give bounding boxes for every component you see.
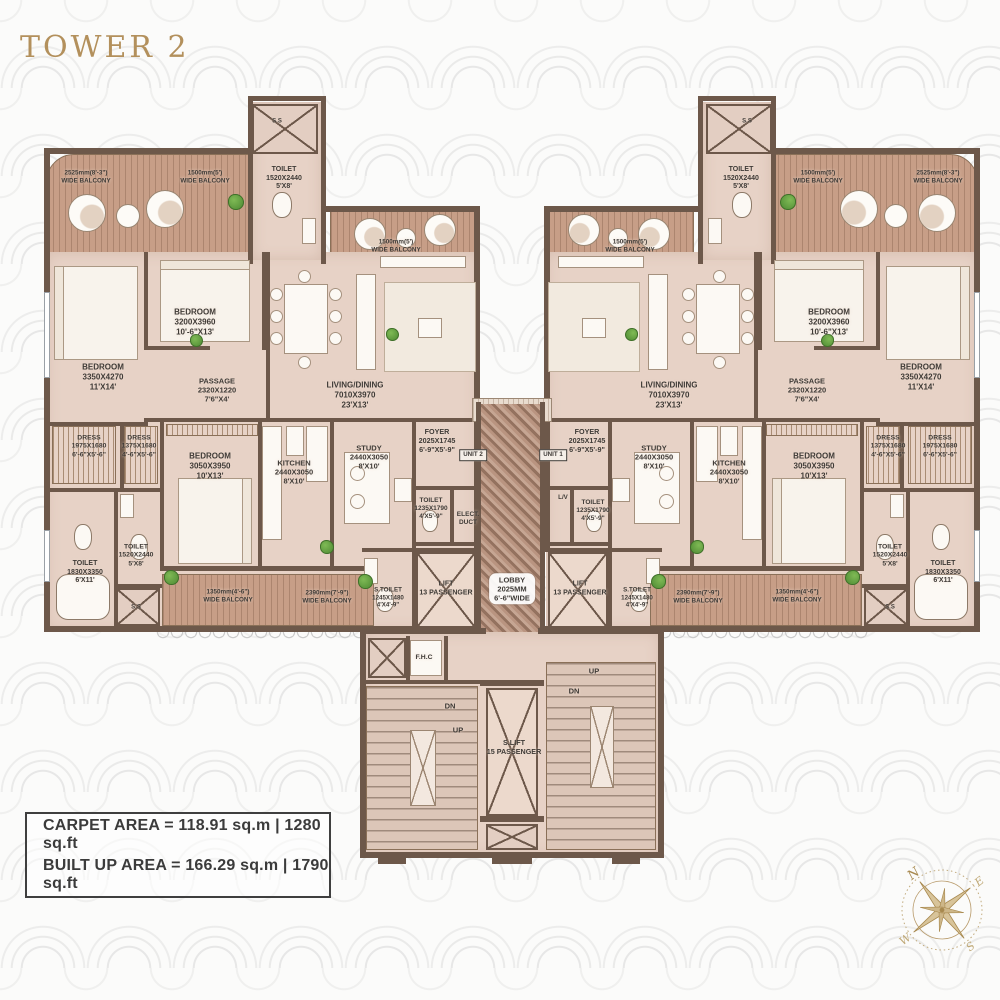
- living-dining-label: LIVING/DINING7010X397023'X13': [641, 380, 698, 409]
- shaft-label: S.S: [885, 604, 895, 611]
- toilet-label: TOILET1520X24405'X8': [873, 544, 908, 569]
- shaft-label: S.S: [272, 118, 282, 125]
- bedroom-label: BEDROOM3350X427011'X14': [82, 362, 124, 391]
- fhc-label: F.H.C: [416, 654, 433, 662]
- dress-label: DRESS1375X16804'-6"X5'-6": [122, 435, 157, 460]
- bedroom-label: BEDROOM3350X427011'X14': [900, 362, 942, 391]
- kitchen-label: KITCHEN2440X30508'X10': [710, 458, 748, 485]
- toilet-label: TOILET1520X24405'X8': [119, 544, 154, 569]
- compass-s: S: [964, 939, 978, 954]
- shaft-label: S.S: [131, 604, 141, 611]
- shaft-label: S.S: [742, 118, 752, 125]
- toilet-label: S.TOILET1245X14804'X4'-9": [372, 587, 404, 610]
- compass-n: N: [904, 864, 923, 884]
- built-up-area-text: BUILT UP AREA = 166.29 sq.m | 1790 sq.ft: [43, 857, 329, 893]
- toilet-label: S.TOILET1245X14804'X4'-9": [621, 587, 653, 610]
- bedroom-label: BEDROOM3050X395010'X13': [793, 451, 835, 480]
- bedroom-label: BEDROOM3050X395010'X13': [189, 451, 231, 480]
- lift-label: LIFT13 PASSENGER: [553, 580, 606, 597]
- elect-duct-label: ELECT.DUCT: [457, 511, 479, 527]
- service-lift-label: S.LIFT15 PASSENGER: [487, 739, 542, 757]
- compass-rose: N E S W: [890, 858, 994, 962]
- balcony-label: 2390mm(7'-9")WIDE BALCONY: [302, 589, 351, 604]
- unit-1-tag: UNIT 1: [539, 449, 567, 461]
- toilet-label: TOILET1235X17904'X5'-9": [576, 499, 609, 523]
- stair-up-label: UP: [589, 666, 599, 675]
- stair-dn-label: DN: [445, 701, 456, 710]
- compass-w: W: [897, 930, 915, 948]
- bedroom-label: BEDROOM3200X396010'-6"X13': [174, 307, 216, 336]
- study-label: STUDY2440X30508'X10': [350, 443, 388, 470]
- compass-e: E: [971, 874, 986, 890]
- stair-up-label: UP: [453, 725, 463, 734]
- toilet-label: TOILET1520X24405'X8': [266, 166, 302, 192]
- foyer-label: FOYER2025X17456'-9"X5'-9": [419, 428, 456, 454]
- kitchen-label: KITCHEN2440X30508'X10': [275, 458, 313, 485]
- dress-label: DRESS1375X16804'-6"X5'-6": [871, 435, 906, 460]
- unit-2-tag: UNIT 2: [459, 449, 487, 461]
- passage-label: PASSAGE2320X12207'6"X4': [788, 376, 826, 403]
- balcony-label: 1500mm(5')WIDE BALCONY: [180, 169, 229, 184]
- stair-dn-label: DN: [569, 686, 580, 695]
- lobby-label: LOBBY2025MM6'-6"WIDE: [489, 573, 535, 604]
- balcony-label: 2525mm(8'-3")WIDE BALCONY: [913, 169, 962, 184]
- foyer-label: FOYER2025X17456'-9"X5'-9": [569, 428, 606, 454]
- balcony-label: 1500mm(5')WIDE BALCONY: [605, 238, 654, 253]
- toilet-label: TOILET1520X24405'X8': [723, 166, 759, 192]
- lv-label: L/V: [558, 494, 568, 502]
- bedroom-label: BEDROOM3200X396010'-6"X13': [808, 307, 850, 336]
- area-info-box: CARPET AREA = 118.91 sq.m | 1280 sq.ft B…: [25, 812, 331, 898]
- balcony-label: 1500mm(5')WIDE BALCONY: [793, 169, 842, 184]
- carpet-area-text: CARPET AREA = 118.91 sq.m | 1280 sq.ft: [43, 817, 329, 853]
- dress-label: DRESS1975X16806'-6"X5'-6": [923, 435, 958, 460]
- balcony-label: 2390mm(7'-9")WIDE BALCONY: [673, 589, 722, 604]
- dress-label: DRESS1975X16806'-6"X5'-6": [72, 435, 107, 460]
- toilet-label: TOILET1830X33506'X11': [925, 560, 961, 586]
- toilet-label: TOILET1830X33506'X11': [67, 560, 103, 586]
- living-dining-label: LIVING/DINING7010X397023'X13': [327, 380, 384, 409]
- balcony-label: 1500mm(5')WIDE BALCONY: [371, 238, 420, 253]
- balcony-label: 1350mm(4'-6")WIDE BALCONY: [203, 588, 252, 603]
- balcony-label: 2525mm(8'-3")WIDE BALCONY: [61, 169, 110, 184]
- toilet-label: TOILET1235X17904'X5'-9": [414, 497, 447, 521]
- passage-label: PASSAGE2320X12207'6"X4': [198, 376, 236, 403]
- lift-label: LIFT13 PASSENGER: [419, 580, 472, 597]
- balcony-label: 1350mm(4'-6")WIDE BALCONY: [772, 588, 821, 603]
- study-label: STUDY2440X30508'X10': [635, 443, 673, 470]
